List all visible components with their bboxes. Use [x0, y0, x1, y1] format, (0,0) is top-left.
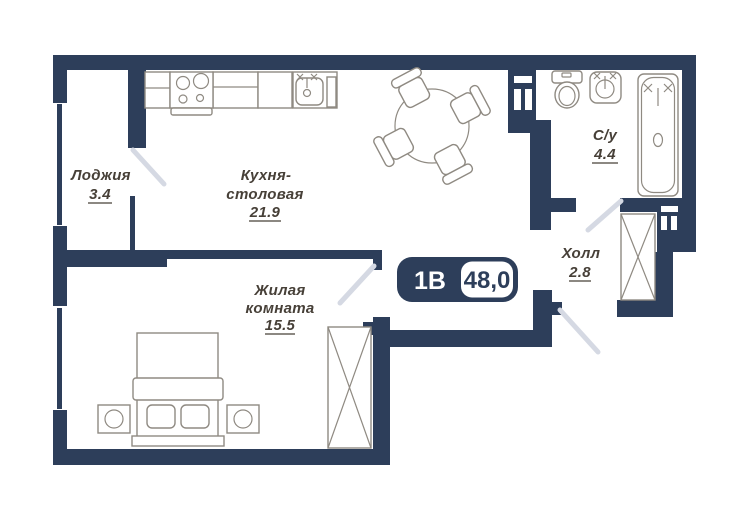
counter-section	[145, 72, 170, 108]
vent-bar-icon	[671, 216, 677, 230]
apartment-badge: 1В 48,0	[397, 257, 518, 302]
living-name-line1: Жилая	[253, 282, 305, 299]
sink-side-panel	[327, 77, 336, 107]
loggia-name: Лоджия	[70, 167, 131, 184]
dining-chair	[390, 66, 434, 110]
living-window	[57, 308, 62, 409]
bathroom-door-swing	[588, 201, 621, 230]
loggia-door-swing	[133, 150, 164, 184]
living-name-line2: комната	[245, 300, 314, 317]
floor-plan: Лоджия 3.4 Кухня- столовая 21.9 Жилая ко…	[0, 0, 737, 510]
wall-kitchen-living-thin	[167, 250, 375, 259]
nightstand-body	[227, 405, 259, 433]
hall-area: 2.8	[568, 264, 591, 281]
hall-wardrobe	[621, 214, 655, 300]
kitchen-name-line2: столовая	[226, 186, 303, 203]
vent-bar-icon	[661, 206, 678, 212]
nightstand-left	[98, 405, 130, 433]
wall-top	[53, 55, 696, 70]
dining-chair	[447, 84, 491, 128]
bathroom-area: 4.4	[593, 146, 616, 163]
wall-bath-bottom-left	[530, 198, 576, 212]
kitchen-counter	[145, 72, 292, 108]
wall-bottom-living	[53, 449, 390, 465]
bathtub-icon	[638, 74, 678, 196]
counter-section	[213, 72, 258, 108]
floor-plan-page: Лоджия 3.4 Кухня- столовая 21.9 Жилая ко…	[0, 0, 737, 510]
wall-loggia-partition-thin	[130, 196, 135, 250]
vent-bar-icon	[514, 89, 521, 110]
kitchen-sink-icon	[293, 72, 337, 108]
pillow	[147, 405, 175, 428]
nightstand-right	[227, 405, 259, 433]
entrance-door-swing	[560, 310, 598, 352]
loggia-area: 3.4	[89, 186, 111, 203]
vent-bar-icon	[525, 89, 532, 110]
loggia-window	[57, 104, 62, 225]
wall-hall-left	[533, 290, 552, 335]
bathroom-sink-icon	[590, 72, 621, 103]
living-wardrobe	[328, 327, 371, 448]
stove-body	[170, 72, 213, 108]
bed-blanket	[133, 378, 223, 400]
dining-chair	[430, 141, 474, 185]
wall-kitchen-bottom	[373, 330, 552, 347]
bed-headboard	[132, 436, 224, 446]
nightstand-body	[98, 405, 130, 433]
kitchen-name-line1: Кухня-	[241, 167, 292, 184]
wall-kitchen-living-thick	[53, 250, 167, 267]
vent-bar-icon	[661, 216, 667, 230]
counter-section	[258, 72, 292, 108]
wall-right-outer	[682, 55, 696, 252]
stove-drawer	[171, 108, 212, 115]
dining-chair	[372, 124, 416, 168]
badge-type-label: 1В	[414, 267, 446, 295]
wall-left-upper	[53, 70, 67, 103]
living-door-swing	[340, 266, 374, 303]
wall-loggia-partition-upper	[128, 70, 146, 148]
bed	[132, 333, 224, 446]
pillow	[181, 405, 209, 428]
kitchen-area: 21.9	[249, 204, 281, 221]
wall-hall-bottom	[617, 300, 673, 317]
hall-name: Холл	[561, 245, 601, 262]
dining-table	[372, 66, 491, 185]
vent-bar-icon	[514, 76, 532, 83]
wall-kitchen-bath-divider-lower	[530, 120, 551, 230]
bathroom-name: С/у	[593, 127, 618, 144]
toilet-icon	[552, 71, 582, 108]
stove-icon	[170, 72, 213, 115]
badge-area-label: 48,0	[464, 267, 511, 294]
living-area: 15.5	[265, 317, 296, 334]
